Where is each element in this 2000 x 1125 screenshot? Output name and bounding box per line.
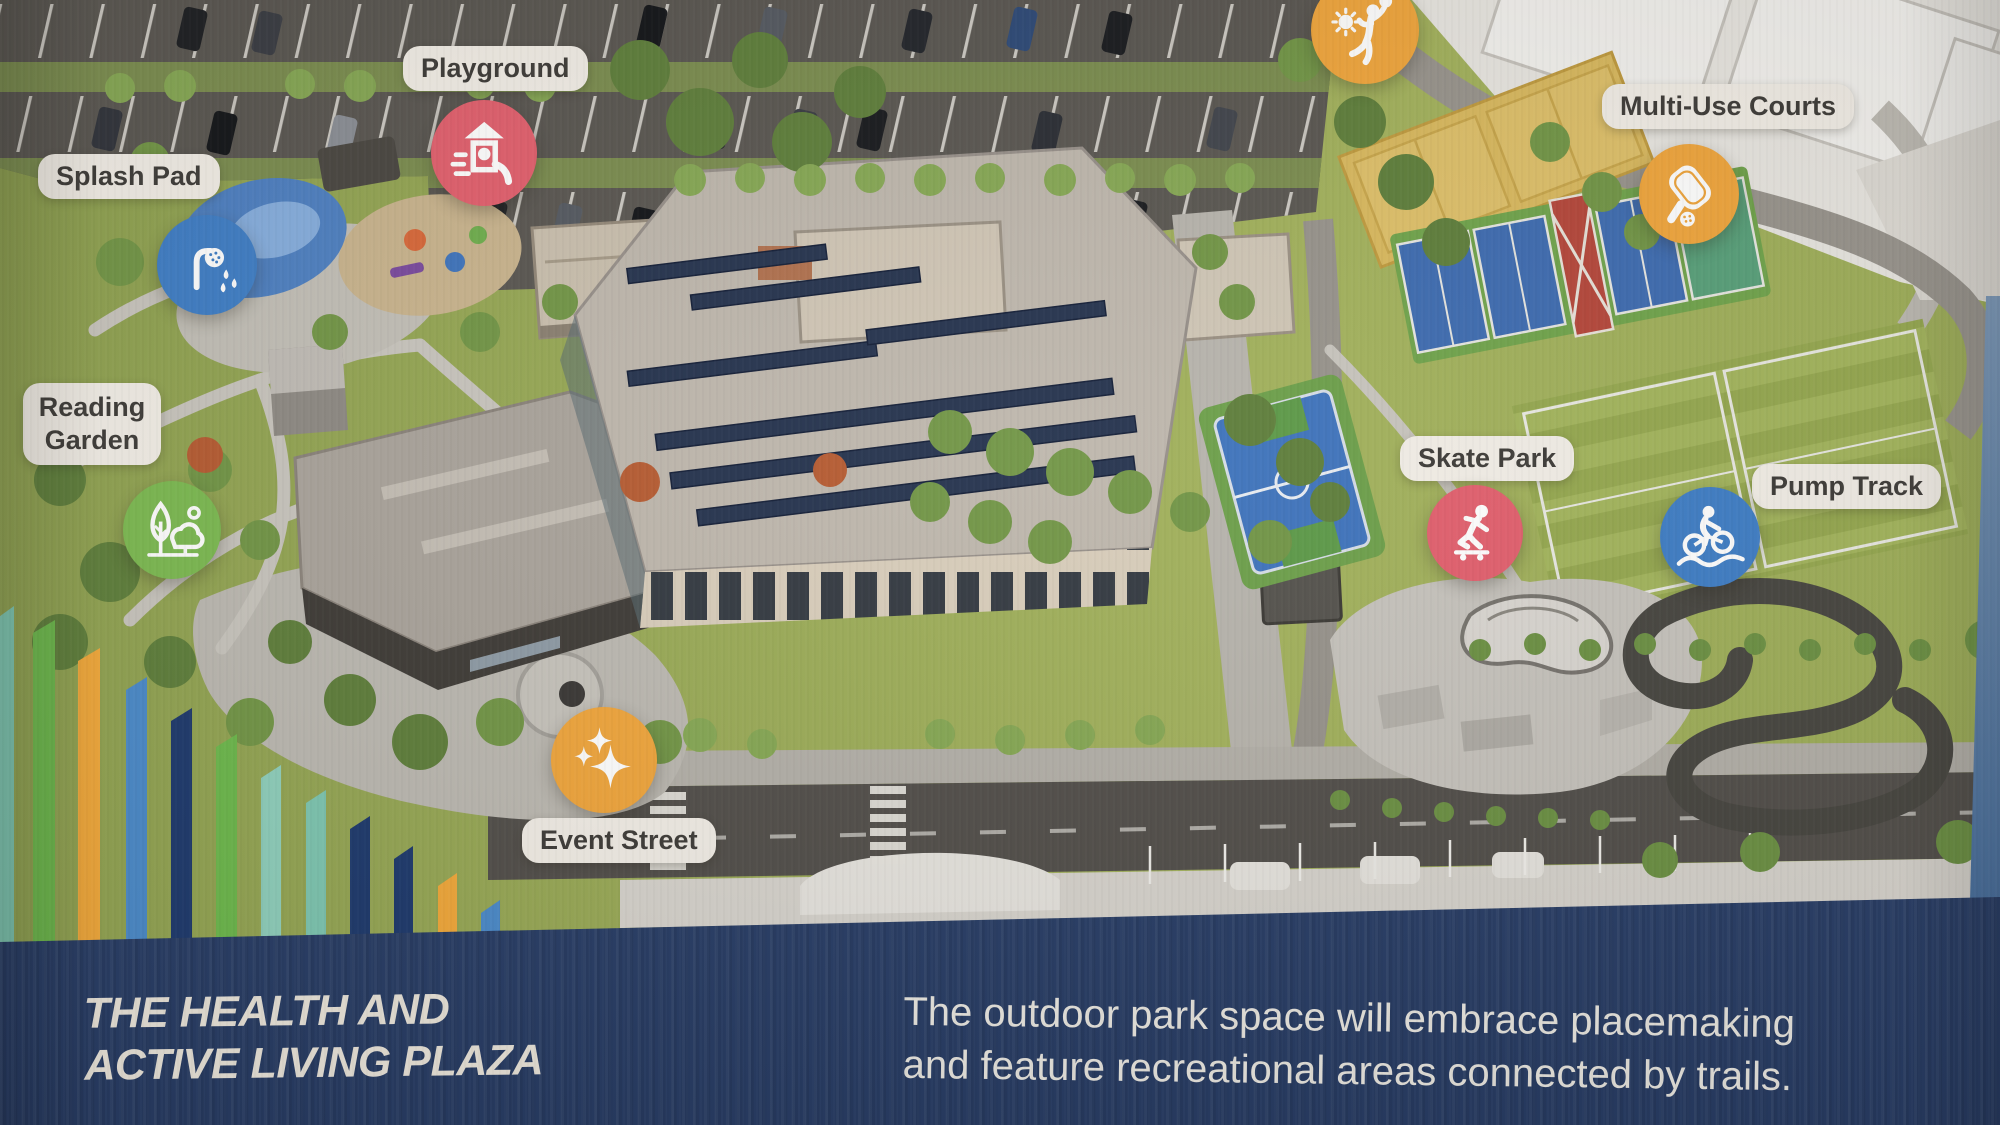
event-street-label: Event Street: [522, 818, 716, 863]
banner-title-line2: ACTIVE LIVING PLAZA: [84, 1035, 543, 1092]
gable-house: [268, 344, 348, 436]
playground-label: Playground: [403, 46, 588, 91]
banner-title: THE HEALTH AND ACTIVE LIVING PLAZA: [83, 983, 543, 1092]
banner-title-line1: THE HEALTH AND: [83, 983, 542, 1040]
recreation-center-building: [560, 148, 1196, 628]
volleyball-player-icon: [1325, 0, 1405, 70]
reading-garden-label: Reading Garden: [23, 383, 161, 465]
banner-description: The outdoor park space will embrace plac…: [902, 986, 1795, 1105]
reading-garden-icon: [136, 494, 209, 567]
event-street-marker: [551, 707, 657, 813]
splash-pad-marker: [157, 215, 257, 315]
multi-use-courts-marker: [1639, 144, 1739, 244]
skateboarder-icon: [1439, 497, 1510, 568]
pump-track-label: Pump Track: [1752, 464, 1941, 509]
multi-use-courts-label: Multi-Use Courts: [1602, 84, 1854, 129]
sparkles-icon: [565, 721, 643, 799]
skate-park-label: Skate Park: [1400, 436, 1574, 481]
splash-pad-icon: [170, 228, 244, 302]
pickleball-paddle-icon: [1652, 157, 1726, 231]
skate-park-marker: [1427, 485, 1523, 581]
playground-icon: [445, 114, 523, 192]
playground-marker: [431, 100, 537, 206]
cyclist-icon: [1673, 500, 1747, 574]
splash-pad-label: Splash Pad: [38, 154, 220, 199]
pump-track-marker: [1660, 487, 1760, 587]
plaza-sign-poster: Playground Splash Pad Reading Garden: [0, 0, 2000, 1125]
reading-garden-marker: [123, 481, 221, 579]
